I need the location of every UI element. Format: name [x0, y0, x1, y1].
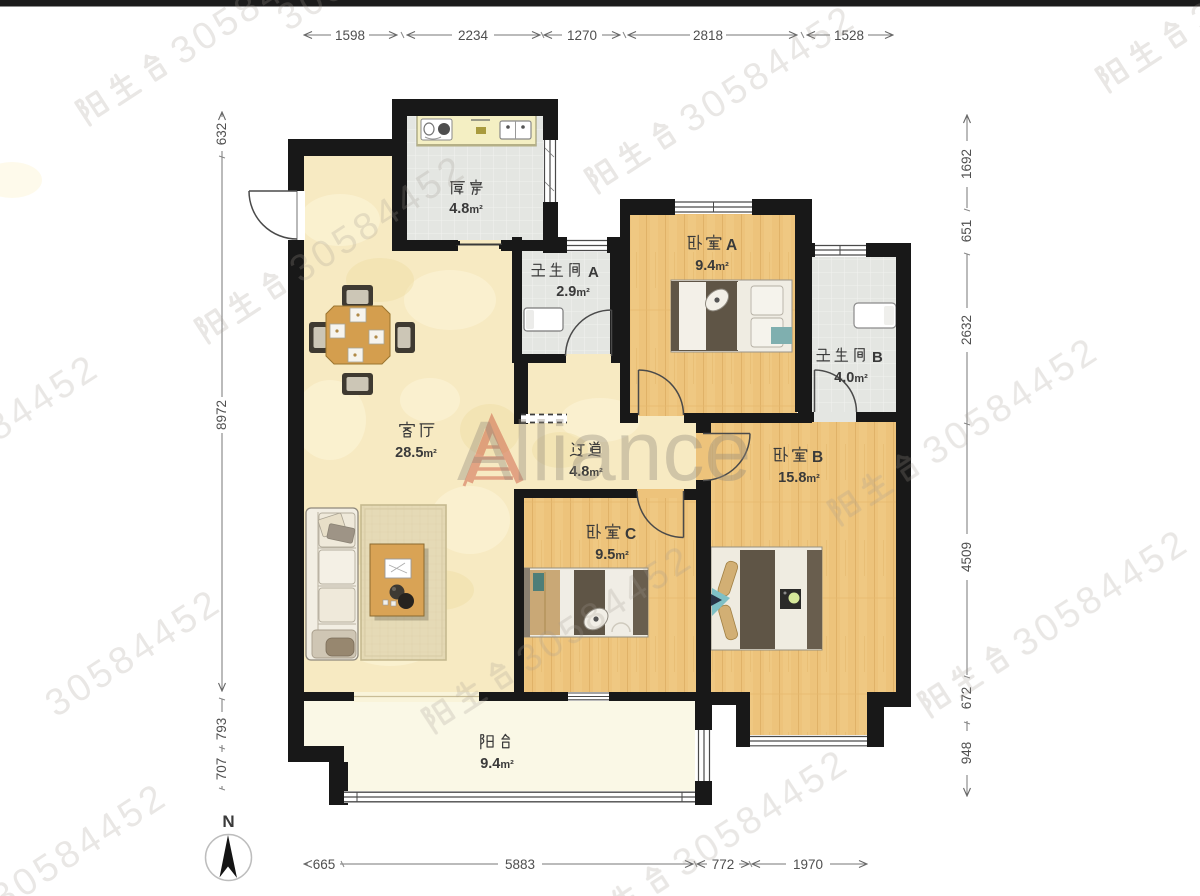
svg-text:1598: 1598 [335, 28, 365, 43]
svg-text:9.4m²: 9.4m² [480, 756, 514, 772]
svg-text:B: B [872, 349, 883, 366]
svg-text:4.0m²: 4.0m² [834, 370, 868, 386]
svg-text:A: A [588, 264, 599, 281]
svg-text:1270: 1270 [567, 28, 597, 43]
svg-text:793: 793 [214, 718, 229, 741]
svg-text:N: N [222, 812, 234, 831]
svg-text:C: C [625, 526, 636, 543]
svg-text:Alliance: Alliance [457, 404, 751, 498]
svg-text:4.8m²: 4.8m² [449, 201, 483, 217]
svg-text:4509: 4509 [959, 542, 974, 572]
svg-text:5883: 5883 [505, 857, 535, 872]
svg-text:2818: 2818 [693, 28, 723, 43]
svg-text:948: 948 [959, 742, 974, 765]
svg-text:2234: 2234 [458, 28, 489, 43]
svg-text:651: 651 [959, 220, 974, 243]
svg-text:2.9m²: 2.9m² [556, 284, 590, 300]
svg-text:8972: 8972 [214, 400, 229, 430]
svg-text:1692: 1692 [959, 149, 974, 179]
svg-text:B: B [812, 449, 823, 466]
svg-text:15.8m²: 15.8m² [778, 470, 820, 486]
svg-text:28.5m²: 28.5m² [395, 445, 437, 461]
svg-text:A: A [726, 237, 737, 254]
svg-text:632: 632 [214, 123, 229, 146]
svg-text:9.5m²: 9.5m² [595, 547, 629, 563]
svg-text:707: 707 [214, 758, 229, 781]
svg-text:9.4m²: 9.4m² [695, 258, 729, 274]
svg-text:1970: 1970 [793, 857, 823, 872]
svg-text:665: 665 [313, 857, 336, 872]
svg-text:2632: 2632 [959, 315, 974, 345]
